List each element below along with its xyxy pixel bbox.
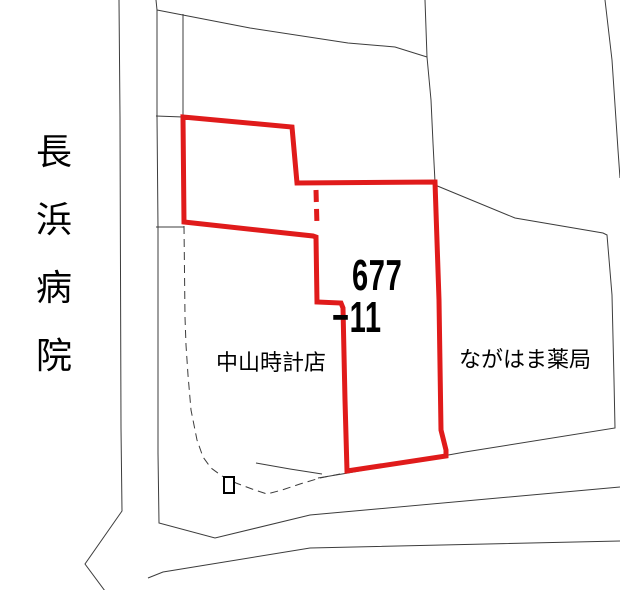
hospital-char-3: 病	[34, 270, 74, 306]
road-northeast-line	[605, 0, 620, 178]
watch-shop-label: 中山時計店	[216, 351, 326, 374]
building-marker-icon	[224, 477, 234, 493]
map-canvas	[0, 0, 620, 590]
hospital-char-1: 長	[34, 134, 74, 170]
road-left-outer-line	[85, 0, 122, 590]
road-upper-vertical-line	[425, 0, 435, 182]
cadastral-map: 長 浜 病 院 677 −11 中山時計店 ながはま薬局	[0, 0, 620, 590]
pharmacy-label: ながはま薬局	[459, 348, 591, 371]
alley-upper-line	[256, 463, 322, 474]
road-south-outer-line	[148, 541, 620, 578]
hospital-char-4: 院	[34, 338, 74, 374]
parcel-677-11-outline	[183, 117, 446, 471]
road-top-diagonal-line	[157, 10, 427, 57]
parcel-677-11-inner-dashed-boundary	[316, 190, 317, 226]
parcel-number-line2: −11	[332, 296, 382, 340]
hospital-label: 長 浜 病 院	[34, 134, 74, 374]
parcel-number-line1: 677	[352, 254, 402, 298]
hospital-char-2: 浜	[34, 202, 74, 238]
boundary-tick-upper	[156, 116, 183, 117]
